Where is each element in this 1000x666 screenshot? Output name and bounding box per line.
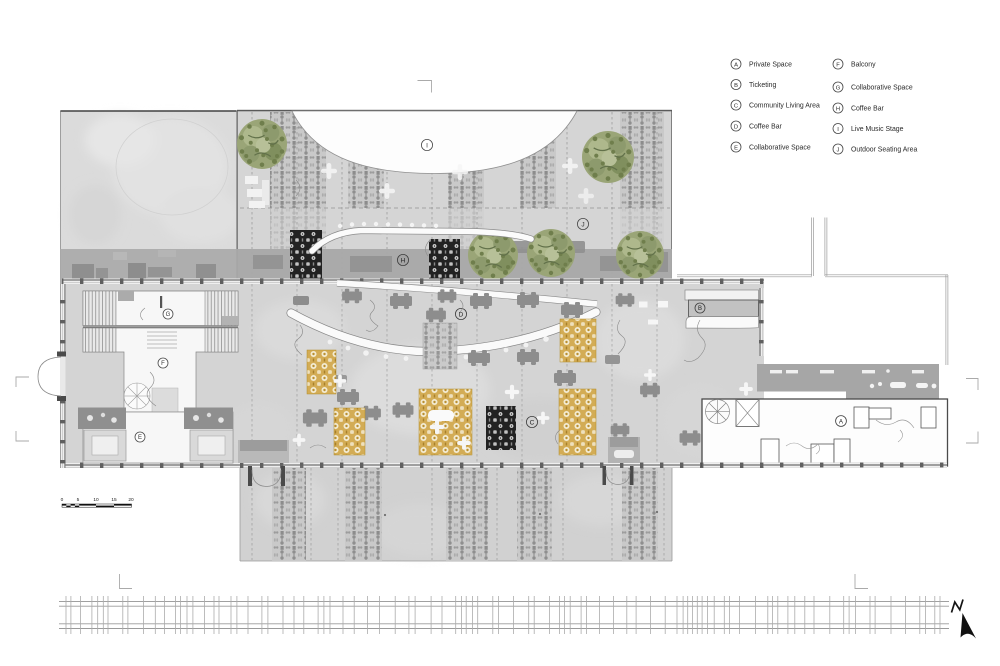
svg-text:C: C: [734, 103, 738, 109]
svg-text:G: G: [166, 312, 171, 318]
svg-text:E: E: [138, 435, 142, 441]
svg-text:Coffee Bar: Coffee Bar: [851, 106, 885, 113]
svg-text:Community Living Area: Community Living Area: [749, 103, 820, 110]
svg-text:Balcony: Balcony: [851, 62, 876, 69]
svg-text:F: F: [836, 62, 840, 68]
svg-text:0: 0: [61, 497, 64, 503]
svg-text:15: 15: [111, 497, 117, 503]
svg-text:J: J: [581, 221, 584, 228]
svg-text:20: 20: [128, 497, 134, 503]
svg-text:E: E: [734, 145, 738, 151]
svg-text:D: D: [734, 124, 738, 130]
svg-text:Private Space: Private Space: [749, 62, 792, 69]
svg-text:Ticketing: Ticketing: [749, 82, 776, 89]
svg-text:F: F: [161, 361, 165, 367]
svg-text:I: I: [426, 142, 428, 149]
svg-text:J: J: [837, 147, 840, 153]
svg-text:H: H: [836, 106, 840, 112]
svg-text:Collaborative Space: Collaborative Space: [851, 85, 913, 92]
svg-text:B: B: [698, 306, 702, 312]
svg-text:A: A: [734, 62, 738, 68]
svg-text:5: 5: [77, 497, 80, 503]
svg-text:G: G: [836, 85, 841, 91]
svg-text:B: B: [734, 83, 738, 89]
svg-text:Live Music Stage: Live Music Stage: [851, 126, 904, 133]
svg-text:Collaborative Space: Collaborative Space: [749, 145, 811, 152]
svg-text:C: C: [530, 419, 535, 426]
svg-text:10: 10: [93, 497, 99, 503]
svg-text:Coffee Bar: Coffee Bar: [749, 124, 783, 131]
svg-text:H: H: [401, 257, 406, 264]
svg-text:Outdoor Seating Area: Outdoor Seating Area: [851, 147, 917, 154]
svg-text:D: D: [459, 311, 464, 318]
